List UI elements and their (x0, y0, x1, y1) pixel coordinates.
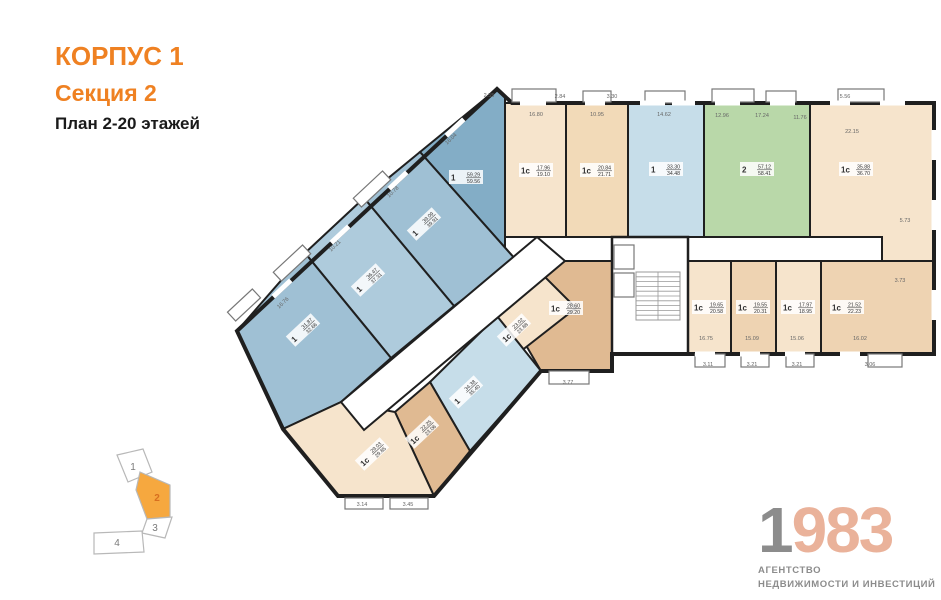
svg-text:59.56: 59.56 (467, 179, 480, 185)
dimension-label: 2.55 (484, 93, 495, 99)
balcony (712, 89, 754, 102)
dimension-label: 3.45 (403, 502, 414, 508)
balcony (512, 89, 556, 102)
dimension-label: 3.06 (865, 362, 876, 368)
svg-text:34.48: 34.48 (667, 171, 680, 177)
svg-text:1с: 1с (832, 304, 841, 313)
dimension-label: 22.15 (845, 129, 859, 135)
dimension-label: 17.24 (755, 113, 769, 119)
logo-tagline: АГЕНТСТВО НЕДВИЖИМОСТИ И ИНВЕСТИЦИЙ (758, 564, 938, 593)
svg-text:20.58: 20.58 (710, 309, 723, 315)
logo-digit-1: 1 (758, 494, 792, 566)
apartment-label-1c-1797: 1с17.9718.95 (781, 300, 815, 315)
logo-tagline-line1: АГЕНТСТВО (758, 564, 938, 578)
logo-tagline-line2: НЕДВИЖИМОСТИ И ИНВЕСТИЦИЙ (758, 578, 938, 592)
apartment-label-1-59: 159.2959.56 (449, 170, 483, 185)
apartment-label-1c-2860: 1с28.6029.20 (549, 301, 583, 316)
window (585, 101, 605, 106)
elevator (614, 245, 634, 269)
floors-subtitle: План 2-20 этажей (55, 113, 200, 134)
svg-text:1с: 1с (582, 167, 591, 176)
svg-text:1с: 1с (738, 304, 747, 313)
window (740, 352, 760, 357)
svg-text:1: 1 (451, 174, 456, 183)
title-block: КОРПУС 1 Секция 2 План 2-20 этажей (55, 40, 200, 135)
window (785, 352, 805, 357)
dimension-label: 3.77 (563, 380, 574, 386)
window (770, 101, 795, 106)
window (715, 101, 740, 106)
svg-text:1: 1 (651, 166, 656, 175)
minimap-section-number-2: 2 (154, 493, 160, 504)
floor-plan-page: 159.2959.56139.0939.91136.4737.31131.873… (0, 0, 941, 600)
dimension-label: 15.06 (790, 336, 804, 342)
apartment-label-1c-1965: 1с19.6520.58 (692, 300, 726, 315)
svg-text:1с: 1с (694, 304, 703, 313)
dimension-label: 3.30 (607, 94, 618, 100)
window (932, 130, 937, 160)
svg-text:1с: 1с (841, 166, 850, 175)
dimension-label: 3.21 (792, 362, 803, 368)
minimap-section-2[interactable] (136, 472, 170, 519)
apartment-label-1-3330: 133.3034.48 (649, 162, 683, 177)
svg-text:22.23: 22.23 (848, 309, 861, 315)
window (520, 101, 546, 106)
svg-text:19.10: 19.10 (537, 172, 550, 178)
dimension-label: 3.73 (895, 278, 906, 284)
dimension-label: 3.21 (747, 362, 758, 368)
dimension-label: 10.95 (590, 112, 604, 118)
svg-text:29.20: 29.20 (567, 310, 580, 316)
apartment-label-1c-3588: 1с35.8836.70 (839, 162, 873, 177)
apartment-label-1c-2084: 1с20.8421.71 (580, 163, 614, 178)
window (640, 101, 665, 106)
balcony (766, 91, 796, 102)
window (840, 352, 860, 357)
svg-text:58.41: 58.41 (758, 171, 771, 177)
svg-text:2: 2 (742, 166, 747, 175)
corridor-main (537, 237, 882, 261)
minimap-section-number-1: 1 (130, 462, 136, 473)
dimension-label: 3.11 (703, 362, 713, 368)
svg-text:18.95: 18.95 (799, 309, 812, 315)
window (932, 290, 937, 320)
minimap-section-number-4: 4 (114, 538, 120, 549)
dimension-label: 5.73 (900, 218, 911, 224)
elevator (614, 273, 634, 297)
window (932, 200, 937, 230)
dimension-label: 16.02 (853, 336, 867, 342)
dimension-label: 3.14 (357, 502, 368, 508)
dimension-label: 15.09 (745, 336, 759, 342)
section-title: Секция 2 (55, 79, 200, 108)
window (672, 101, 695, 106)
dimension-label: 5.56 (840, 94, 851, 100)
svg-text:21.71: 21.71 (598, 172, 611, 178)
svg-text:1с: 1с (521, 167, 530, 176)
svg-text:1с: 1с (783, 304, 792, 313)
window (830, 101, 850, 106)
svg-text:1с: 1с (551, 305, 560, 314)
building-title: КОРПУС 1 (55, 40, 200, 73)
minimap-section-number-3: 3 (152, 523, 158, 534)
logo-year: 1983 (758, 498, 938, 562)
dimension-label: 16.75 (699, 336, 713, 342)
apartment-label-2-5712: 257.1258.41 (740, 162, 774, 177)
dimension-label: 2.84 (555, 94, 566, 100)
window (695, 352, 715, 357)
dimension-label: 16.80 (529, 112, 543, 118)
dimension-label: 14.62 (657, 112, 671, 118)
logo-digits-983: 983 (792, 494, 893, 566)
svg-text:36.70: 36.70 (857, 171, 870, 177)
agency-logo: 1983 АГЕНТСТВО НЕДВИЖИМОСТИ И ИНВЕСТИЦИЙ (758, 498, 938, 593)
window (880, 101, 905, 106)
apartment-label-1c-2152: 1с21.5222.23 (830, 300, 864, 315)
apartment-label-1c-1955: 1с19.5520.31 (736, 300, 770, 315)
dimension-label: 12.96 (715, 113, 729, 119)
svg-text:20.31: 20.31 (754, 309, 767, 315)
apartment-label-1c-1796: 1с17.9619.10 (519, 163, 553, 178)
dimension-label: 11.76 (793, 115, 806, 121)
